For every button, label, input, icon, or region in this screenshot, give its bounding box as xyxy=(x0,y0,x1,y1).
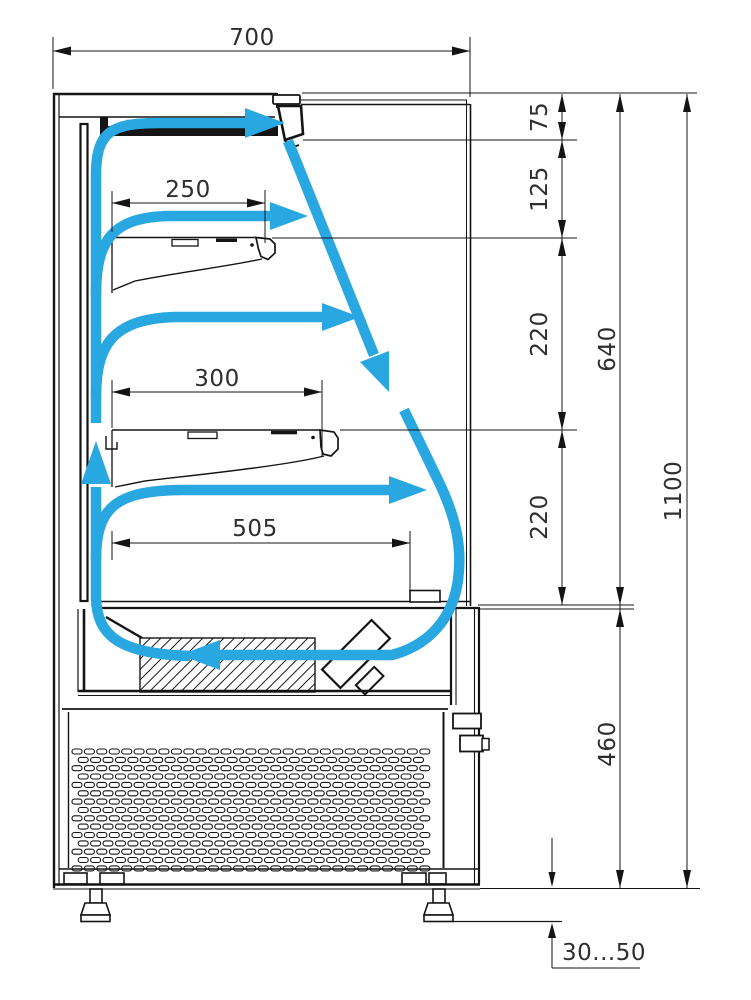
louver-slot xyxy=(333,816,343,821)
louver-slot xyxy=(333,749,343,754)
dim-leg-range: 30...50 xyxy=(548,838,646,968)
louver-slot xyxy=(389,774,399,779)
louver-slot xyxy=(414,841,424,846)
louver-slot xyxy=(252,791,262,796)
louver-slot xyxy=(265,841,275,846)
louver-slot xyxy=(420,799,430,804)
louver-slot xyxy=(153,757,163,762)
louver-slot xyxy=(215,808,225,813)
louver-slot xyxy=(252,824,262,829)
louver-slot xyxy=(215,841,225,846)
louver-slot xyxy=(178,808,188,813)
louver-slot xyxy=(339,858,349,863)
louver-slot xyxy=(171,816,181,821)
louver-slot xyxy=(395,766,405,771)
louver-slot xyxy=(420,782,430,787)
louver-slot xyxy=(308,766,318,771)
louver-slot xyxy=(97,782,107,787)
louver-slot xyxy=(420,849,430,854)
louver-slot xyxy=(240,774,250,779)
louver-slot xyxy=(289,757,299,762)
base-tab xyxy=(64,873,87,884)
louver-slot xyxy=(178,791,188,796)
louver-slot xyxy=(184,799,194,804)
louver-slot xyxy=(178,824,188,829)
louver-slot xyxy=(153,791,163,796)
louver-slot xyxy=(320,799,330,804)
louver-slot xyxy=(97,766,107,771)
louver-slot xyxy=(184,816,194,821)
louver-slot xyxy=(246,833,256,838)
louver-slot xyxy=(289,841,299,846)
louver-slot xyxy=(153,824,163,829)
louver-slot xyxy=(128,858,138,863)
dim-125-label: 125 xyxy=(527,166,553,211)
shelf-upper xyxy=(112,237,275,293)
louver-slot xyxy=(327,841,337,846)
louver-slot xyxy=(147,782,157,787)
louver-slot xyxy=(190,824,200,829)
louver-slot xyxy=(159,782,169,787)
louver-slot xyxy=(370,799,380,804)
louver-slot xyxy=(184,749,194,754)
louver-slot xyxy=(109,749,119,754)
louver-slot xyxy=(333,799,343,804)
louver-slot xyxy=(128,757,138,762)
louver-slot xyxy=(202,808,212,813)
louver-slot xyxy=(234,833,244,838)
airflow xyxy=(81,108,459,670)
shelf-upper-clip xyxy=(172,240,198,247)
dim-640-460: 640 460 xyxy=(595,94,624,888)
dim-30-50-label: 30...50 xyxy=(562,940,646,966)
dim-640-label: 640 xyxy=(595,326,621,371)
dim-shelf-top-depth: 250 xyxy=(112,177,265,243)
base-tab xyxy=(402,873,426,884)
louver-grille xyxy=(72,749,430,871)
louver-slot xyxy=(345,782,355,787)
louver-slot xyxy=(202,757,212,762)
louver-slot xyxy=(308,833,318,838)
louver-slot xyxy=(103,841,113,846)
louver-slot xyxy=(339,841,349,846)
louver-slot xyxy=(345,849,355,854)
louver-slot xyxy=(134,799,144,804)
louver-slot xyxy=(84,833,94,838)
dim-chain-right: 75 125 220 220 xyxy=(527,94,566,605)
louver-slot xyxy=(351,841,361,846)
dim-1100-label: 1100 xyxy=(661,461,687,522)
louver-slot xyxy=(271,799,281,804)
louver-slot xyxy=(339,824,349,829)
louver-slot xyxy=(190,774,200,779)
louver-slot xyxy=(314,858,324,863)
louver-slot xyxy=(165,841,175,846)
louver-slot xyxy=(302,824,312,829)
louver-slot xyxy=(414,824,424,829)
louver-slot xyxy=(159,749,169,754)
louver-slot xyxy=(84,849,94,854)
louver-slot xyxy=(327,858,337,863)
louver-slot xyxy=(327,774,337,779)
dim-depth-total: 700 xyxy=(53,25,470,97)
technical-drawing: 700 250 300 505 xyxy=(0,0,751,1000)
louver-slot xyxy=(277,841,287,846)
louver-slot xyxy=(134,749,144,754)
louver-slot xyxy=(407,816,417,821)
louver-slot xyxy=(370,782,380,787)
louver-slot xyxy=(202,791,212,796)
louver-slot xyxy=(414,791,424,796)
louver-slot xyxy=(395,816,405,821)
louver-slot xyxy=(271,766,281,771)
louver-slot xyxy=(122,833,132,838)
louver-slot xyxy=(140,774,150,779)
louver-slot xyxy=(283,749,293,754)
louver-slot xyxy=(97,799,107,804)
dim-220-lower-label: 220 xyxy=(527,494,553,539)
louver-slot xyxy=(140,824,150,829)
louver-slot xyxy=(240,824,250,829)
louver-slot xyxy=(333,833,343,838)
louver-slot xyxy=(221,782,231,787)
louver-slot xyxy=(140,841,150,846)
louver-slot xyxy=(351,791,361,796)
louver-slot xyxy=(122,749,132,754)
louver-slot xyxy=(91,824,101,829)
louver-slot xyxy=(296,816,306,821)
shelf-upper-mark xyxy=(216,239,237,243)
louver-slot xyxy=(84,782,94,787)
louver-slot xyxy=(91,841,101,846)
louver-slot xyxy=(72,766,82,771)
louver-slot xyxy=(333,849,343,854)
shelf-middle-mark xyxy=(271,431,297,435)
louver-slot xyxy=(395,833,405,838)
louver-slot xyxy=(190,757,200,762)
louver-slot xyxy=(289,774,299,779)
louver-slot xyxy=(320,782,330,787)
louver-slot xyxy=(252,841,262,846)
dim-300-label: 300 xyxy=(194,366,239,392)
louver-slot xyxy=(401,858,411,863)
louver-slot xyxy=(302,791,312,796)
louver-slot xyxy=(289,824,299,829)
louver-slot xyxy=(97,833,107,838)
louver-slot xyxy=(271,849,281,854)
louver-slot xyxy=(320,749,330,754)
louver-slot xyxy=(258,782,268,787)
louver-slot xyxy=(103,791,113,796)
louver-slot xyxy=(364,791,374,796)
louver-slot xyxy=(109,816,119,821)
louver-slot xyxy=(246,799,256,804)
louver-slot xyxy=(84,799,94,804)
louver-slot xyxy=(221,816,231,821)
air-curtain-arrowhead xyxy=(360,351,389,392)
louver-slot xyxy=(258,816,268,821)
louver-slot xyxy=(159,799,169,804)
louver-slot xyxy=(320,816,330,821)
louver-slot xyxy=(308,849,318,854)
louver-slot xyxy=(184,833,194,838)
louver-slot xyxy=(314,808,324,813)
dim-505-label: 505 xyxy=(232,516,277,542)
louver-slot xyxy=(271,749,281,754)
louver-slot xyxy=(215,858,225,863)
side-latch xyxy=(460,736,483,752)
louver-slot xyxy=(78,757,88,762)
louver-slot xyxy=(407,766,417,771)
louver-slot xyxy=(202,774,212,779)
louver-slot xyxy=(171,849,181,854)
louver-slot xyxy=(383,849,393,854)
louver-slot xyxy=(296,849,306,854)
louver-slot xyxy=(265,808,275,813)
louver-slot xyxy=(376,824,386,829)
louver-slot xyxy=(389,808,399,813)
louver-slot xyxy=(196,816,206,821)
louver-slot xyxy=(116,774,126,779)
louver-slot xyxy=(209,749,219,754)
louver-slot xyxy=(277,774,287,779)
louver-slot xyxy=(122,766,132,771)
louver-slot xyxy=(277,791,287,796)
louver-slot xyxy=(407,833,417,838)
louver-slot xyxy=(308,782,318,787)
louver-slot xyxy=(196,749,206,754)
louver-slot xyxy=(147,799,157,804)
dim-75-label: 75 xyxy=(527,102,553,132)
louver-slot xyxy=(227,858,237,863)
louver-slot xyxy=(370,816,380,821)
louver-slot xyxy=(271,833,281,838)
louver-slot xyxy=(333,782,343,787)
louver-slot xyxy=(78,858,88,863)
louver-slot xyxy=(116,858,126,863)
louver-slot xyxy=(246,766,256,771)
louver-slot xyxy=(196,766,206,771)
louver-slot xyxy=(395,749,405,754)
dim-deck-depth: 505 xyxy=(112,516,410,592)
louver-slot xyxy=(234,782,244,787)
louver-slot xyxy=(147,849,157,854)
louver-slot xyxy=(296,766,306,771)
louver-slot xyxy=(389,757,399,762)
drawing-canvas: 700 250 300 505 xyxy=(0,0,751,1000)
louver-slot xyxy=(122,816,132,821)
louver-slot xyxy=(345,833,355,838)
louver-slot xyxy=(159,849,169,854)
louver-slot xyxy=(351,757,361,762)
louver-slot xyxy=(302,841,312,846)
louver-slot xyxy=(72,816,82,821)
louver-slot xyxy=(184,766,194,771)
louver-slot xyxy=(196,799,206,804)
base-tab xyxy=(429,873,446,884)
louver-slot xyxy=(227,774,237,779)
louver-slot xyxy=(116,808,126,813)
louver-slot xyxy=(134,833,144,838)
louver-slot xyxy=(339,791,349,796)
side-latch-knob xyxy=(482,739,489,751)
louver-slot xyxy=(221,833,231,838)
louver-slot xyxy=(420,833,430,838)
louver-slot xyxy=(358,799,368,804)
louver-slot xyxy=(351,824,361,829)
louver-slot xyxy=(78,791,88,796)
shelf-middle-screw xyxy=(311,436,315,440)
louver-slot xyxy=(227,841,237,846)
louver-slot xyxy=(209,816,219,821)
louver-slot xyxy=(196,833,206,838)
louver-slot xyxy=(420,816,430,821)
louver-slot xyxy=(91,858,101,863)
louver-slot xyxy=(202,824,212,829)
louver-slot xyxy=(116,757,126,762)
louver-slot xyxy=(91,774,101,779)
louver-slot xyxy=(171,782,181,787)
louver-slot xyxy=(184,849,194,854)
louver-slot xyxy=(401,824,411,829)
adjustable-foot-left xyxy=(81,889,110,922)
louver-slot xyxy=(159,816,169,821)
louver-slot xyxy=(109,766,119,771)
louver-slot xyxy=(389,858,399,863)
louver-slot xyxy=(165,858,175,863)
louver-slot xyxy=(277,824,287,829)
louver-slot xyxy=(327,757,337,762)
base-frame xyxy=(53,873,480,889)
louver-slot xyxy=(407,782,417,787)
shelf-upper-bracket xyxy=(113,259,262,290)
louver-slot xyxy=(178,774,188,779)
louver-slot xyxy=(140,791,150,796)
machine-compartment xyxy=(59,709,479,871)
louver-slot xyxy=(302,858,312,863)
louver-slot xyxy=(358,782,368,787)
louver-slot xyxy=(376,774,386,779)
louver-slot xyxy=(314,841,324,846)
louver-slot xyxy=(72,749,82,754)
louver-slot xyxy=(72,799,82,804)
louver-slot xyxy=(72,782,82,787)
louver-slot xyxy=(283,816,293,821)
louver-slot xyxy=(128,774,138,779)
louver-slot xyxy=(383,816,393,821)
louver-slot xyxy=(227,791,237,796)
louver-slot xyxy=(209,766,219,771)
louver-slot xyxy=(190,858,200,863)
louver-slot xyxy=(97,849,107,854)
louver-slot xyxy=(364,824,374,829)
louver-slot xyxy=(351,808,361,813)
louver-slot xyxy=(401,841,411,846)
louver-slot xyxy=(351,858,361,863)
louver-slot xyxy=(147,766,157,771)
louver-slot xyxy=(140,757,150,762)
louver-slot xyxy=(277,808,287,813)
louver-slot xyxy=(196,782,206,787)
louver-slot xyxy=(265,774,275,779)
louver-slot xyxy=(333,766,343,771)
louver-slot xyxy=(109,849,119,854)
louver-slot xyxy=(314,774,324,779)
louver-slot xyxy=(128,791,138,796)
louver-slot xyxy=(153,808,163,813)
louver-slot xyxy=(153,858,163,863)
louver-slot xyxy=(339,757,349,762)
louver-slot xyxy=(153,774,163,779)
louver-slot xyxy=(320,849,330,854)
louver-slot xyxy=(72,833,82,838)
louver-slot xyxy=(109,782,119,787)
louver-slot xyxy=(103,774,113,779)
louver-slot xyxy=(383,833,393,838)
louver-slot xyxy=(296,833,306,838)
louver-slot xyxy=(109,833,119,838)
louver-slot xyxy=(196,849,206,854)
louver-slot xyxy=(252,808,262,813)
louver-slot xyxy=(128,841,138,846)
louver-slot xyxy=(327,824,337,829)
louver-slot xyxy=(91,757,101,762)
louver-slot xyxy=(414,808,424,813)
louver-slot xyxy=(140,858,150,863)
louver-slot xyxy=(383,766,393,771)
louver-slot xyxy=(221,849,231,854)
louver-slot xyxy=(171,766,181,771)
louver-slot xyxy=(78,824,88,829)
louver-slot xyxy=(134,816,144,821)
louver-slot xyxy=(383,782,393,787)
louver-slot xyxy=(271,816,281,821)
louver-slot xyxy=(165,791,175,796)
louver-slot xyxy=(134,782,144,787)
shelf-middle-lip xyxy=(320,430,338,456)
louver-slot xyxy=(116,841,126,846)
louver-slot xyxy=(165,808,175,813)
louver-slot xyxy=(171,749,181,754)
louver-slot xyxy=(116,791,126,796)
louver-slot xyxy=(84,766,94,771)
side-box xyxy=(453,714,481,729)
lower-front-wall xyxy=(453,609,489,884)
louver-slot xyxy=(178,841,188,846)
louver-slot xyxy=(389,791,399,796)
louver-slot xyxy=(258,766,268,771)
louver-slot xyxy=(370,849,380,854)
louver-slot xyxy=(209,782,219,787)
louver-slot xyxy=(308,816,318,821)
louver-slot xyxy=(364,858,374,863)
louver-slot xyxy=(314,757,324,762)
dim-700-label: 700 xyxy=(229,25,274,51)
louver-slot xyxy=(128,808,138,813)
louver-slot xyxy=(147,833,157,838)
louver-slot xyxy=(258,799,268,804)
shelf-middle-bracket xyxy=(115,456,324,487)
louver-slot xyxy=(383,749,393,754)
louver-slot xyxy=(414,858,424,863)
louver-slot xyxy=(296,799,306,804)
cabinet-structure xyxy=(53,93,562,922)
louver-slot xyxy=(376,791,386,796)
louver-slot xyxy=(283,799,293,804)
louver-slot xyxy=(407,749,417,754)
louver-slot xyxy=(327,791,337,796)
louver-slot xyxy=(401,774,411,779)
